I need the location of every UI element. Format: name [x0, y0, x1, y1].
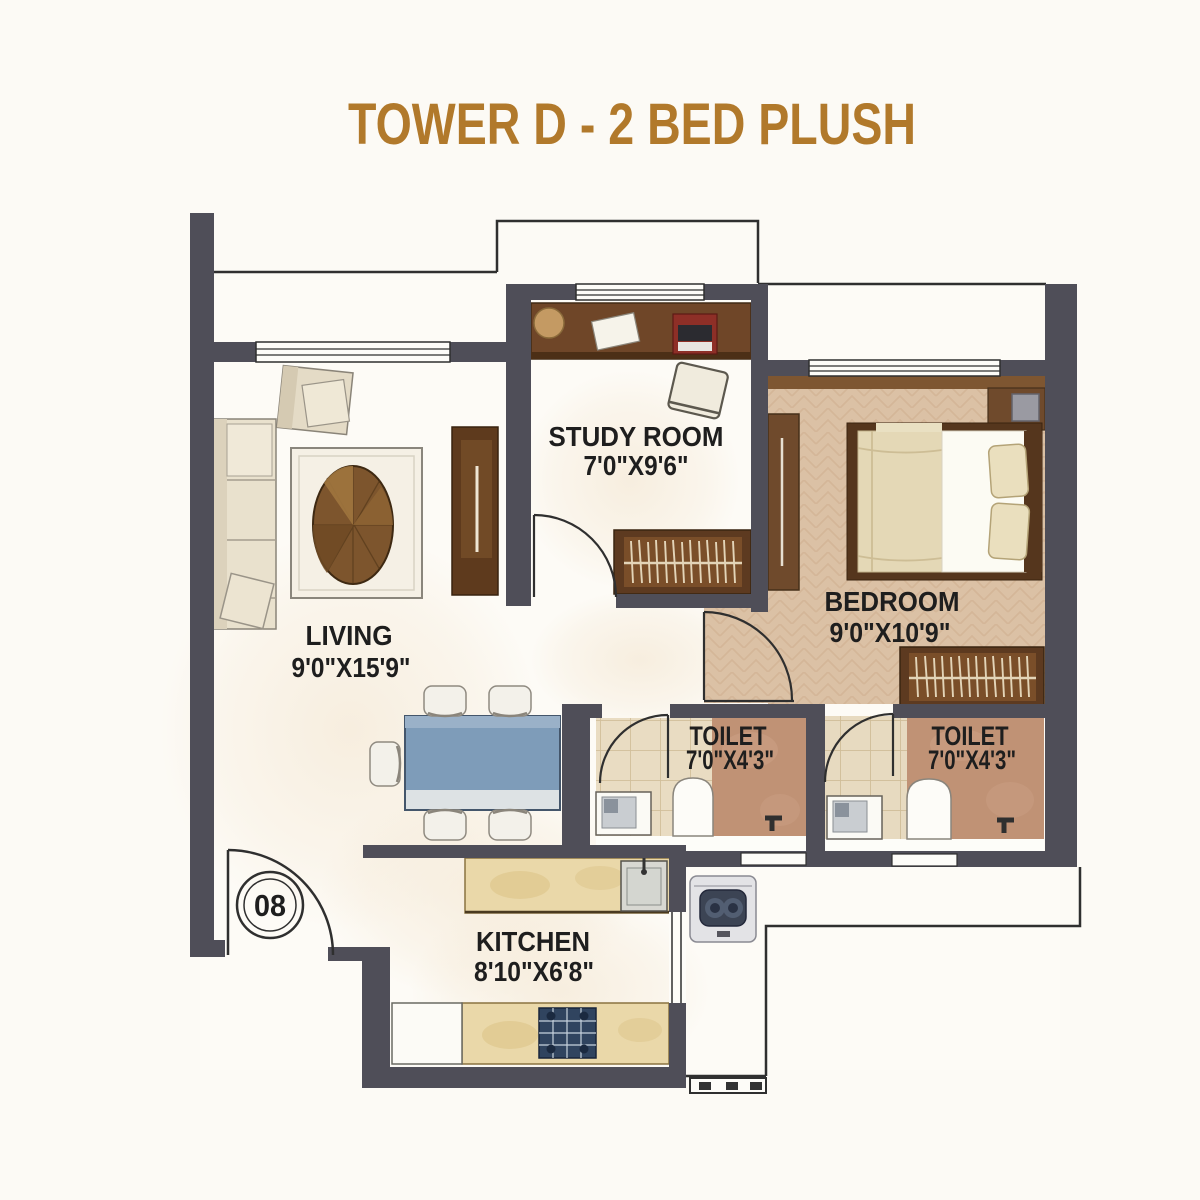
svg-text:TOWER D - 2 BED PLUSH: TOWER D - 2 BED PLUSH [348, 92, 916, 157]
svg-text:7'0"X4'3": 7'0"X4'3" [928, 745, 1016, 775]
svg-text:BEDROOM: BEDROOM [825, 586, 960, 617]
svg-text:7'0"X9'6": 7'0"X9'6" [584, 450, 689, 481]
svg-text:9'0"X10'9": 9'0"X10'9" [830, 617, 951, 648]
svg-text:08: 08 [254, 888, 286, 923]
svg-text:KITCHEN: KITCHEN [476, 926, 590, 957]
svg-text:7'0"X4'3": 7'0"X4'3" [686, 745, 774, 775]
svg-text:STUDY ROOM: STUDY ROOM [549, 421, 724, 452]
svg-text:LIVING: LIVING [306, 620, 393, 651]
svg-text:8'10"X6'8": 8'10"X6'8" [474, 956, 594, 987]
svg-text:9'0"X15'9": 9'0"X15'9" [292, 652, 411, 683]
